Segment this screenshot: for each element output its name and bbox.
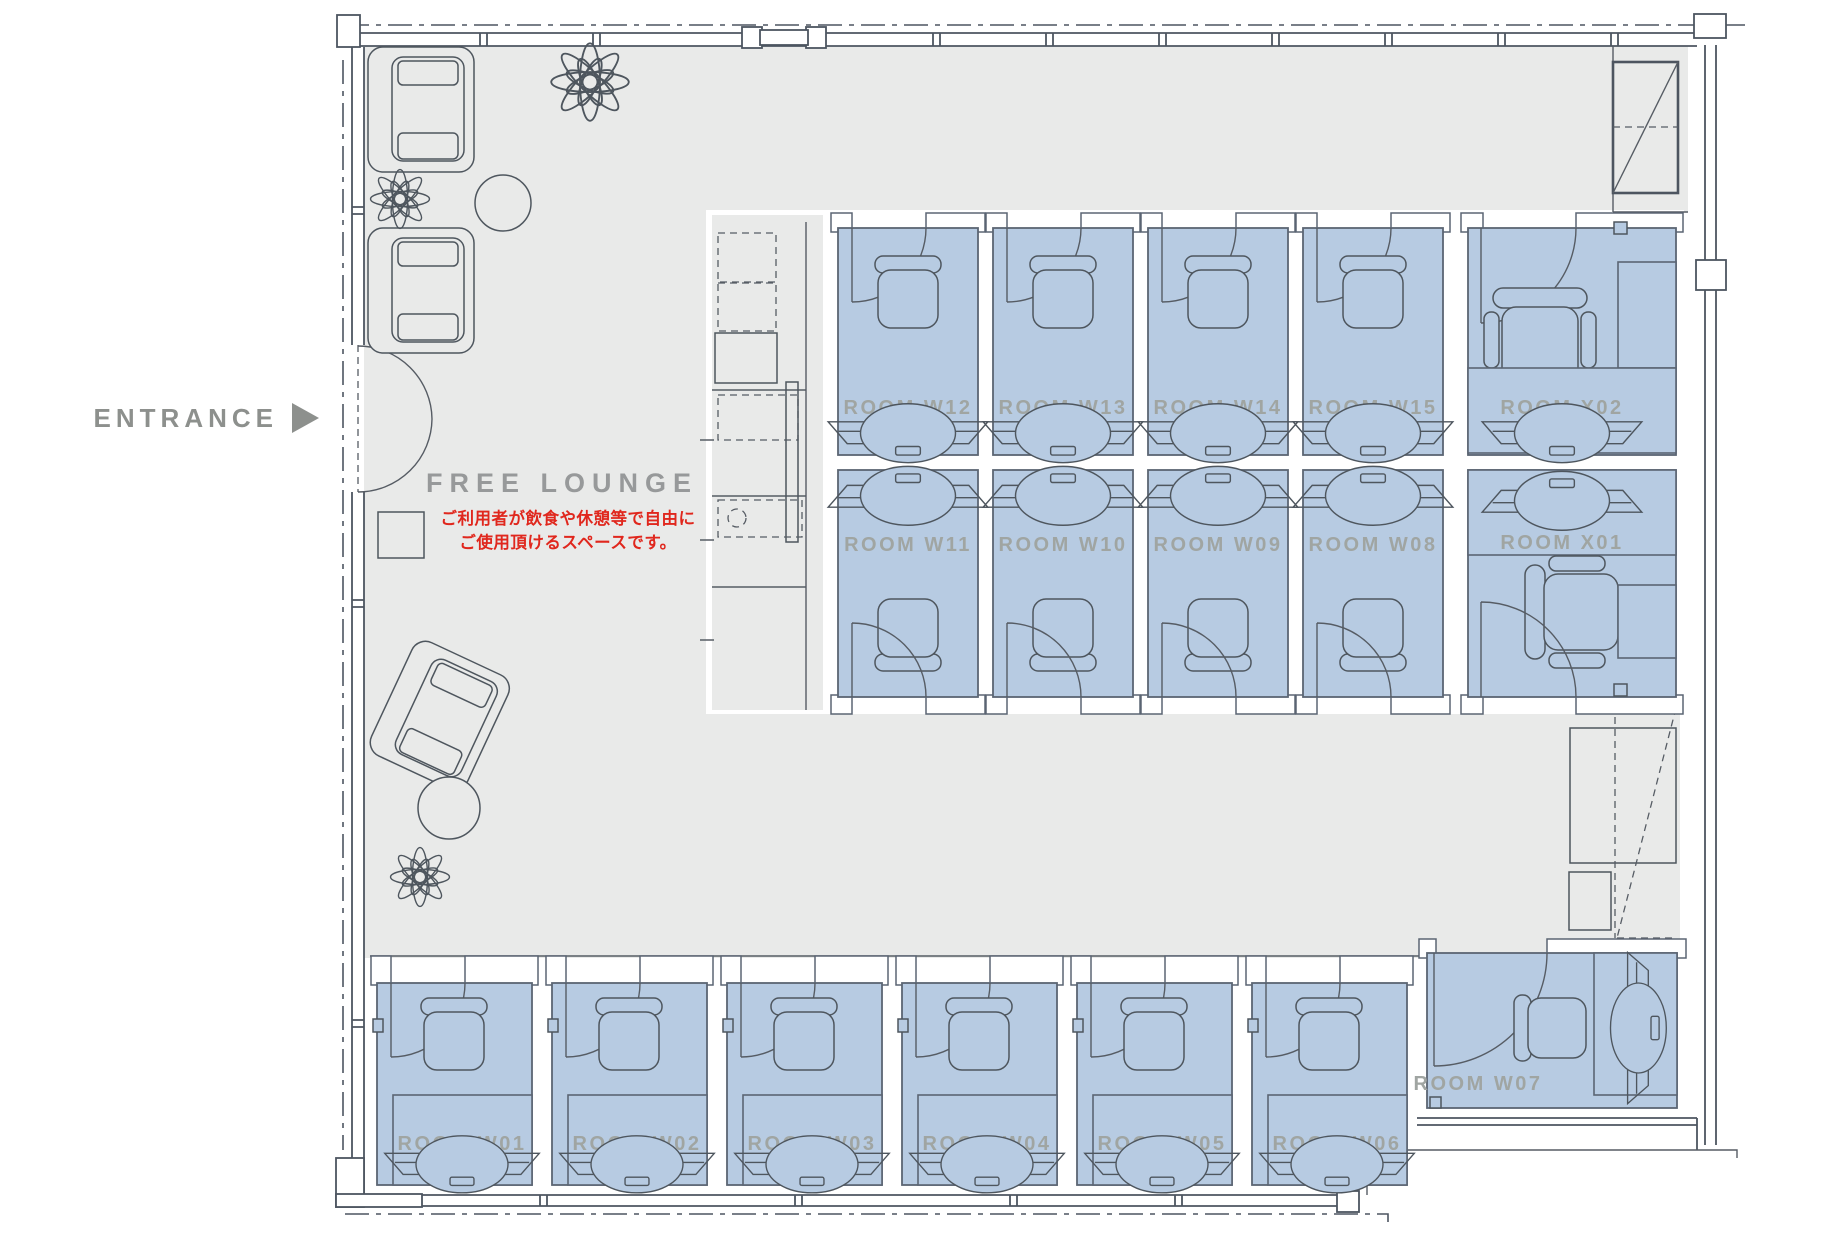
room-w06: ROOM W06 xyxy=(1246,956,1414,1193)
room-w10: ROOM W10 xyxy=(983,466,1143,714)
lounge-note-line1: ご利用者が飲食や休憩等で自由に xyxy=(441,508,696,528)
door-latch xyxy=(1614,222,1627,234)
room-w09: ROOM W09 xyxy=(1138,466,1298,714)
room-w03: ROOM W03 xyxy=(721,956,889,1193)
chair-icon xyxy=(596,998,662,1070)
room-label: ROOM W11 xyxy=(844,534,972,556)
door-latch xyxy=(1430,1097,1441,1108)
room-x02: ROOM X02 xyxy=(1461,213,1683,463)
door-latch xyxy=(723,1019,733,1032)
room-label: ROOM X01 xyxy=(1500,532,1623,554)
side-desk xyxy=(1618,585,1676,658)
chair-icon xyxy=(875,256,941,328)
door-latch xyxy=(1614,684,1627,696)
chair-icon xyxy=(1030,599,1096,671)
corner-post-topleft xyxy=(337,15,360,47)
door-latch xyxy=(548,1019,558,1032)
bottom-right-step xyxy=(1367,1150,1737,1195)
room-label: ROOM W10 xyxy=(999,534,1128,556)
chair-icon xyxy=(946,998,1012,1070)
room-w15: ROOM W15 xyxy=(1293,213,1453,463)
boundary-bottom xyxy=(345,1214,1388,1222)
round-table xyxy=(475,175,531,231)
side-cabinet xyxy=(378,512,424,558)
room-w12: ROOM W12 xyxy=(828,213,988,463)
top-wall-column xyxy=(806,27,826,48)
corner-post-topright xyxy=(1694,14,1726,38)
lounge-sofa xyxy=(368,47,474,172)
room-w02: ROOM W02 xyxy=(546,956,714,1193)
chair-icon xyxy=(771,998,837,1070)
top-wall-column xyxy=(742,27,762,48)
room-w11: ROOM W11 xyxy=(828,466,988,714)
room-w13: ROOM W13 xyxy=(983,213,1143,463)
room-label: ROOM W09 xyxy=(1154,534,1283,556)
bottom-wall-mullions xyxy=(540,1195,1182,1206)
room-w04: ROOM W04 xyxy=(896,956,1064,1193)
top-wall-mullions xyxy=(480,33,1618,46)
door-latch xyxy=(373,1019,383,1032)
entrance-label: ENTRANCE xyxy=(94,403,278,433)
side-desk xyxy=(1618,262,1676,368)
chair-icon xyxy=(1340,256,1406,328)
room-w08: ROOM W08 xyxy=(1293,466,1453,714)
w07-south-wall xyxy=(1417,1118,1697,1150)
kitchen-counter xyxy=(700,215,823,710)
chair-icon xyxy=(1296,998,1362,1070)
corner-post-bottomleft-web xyxy=(336,1194,422,1207)
door-latch xyxy=(1073,1019,1083,1032)
entrance-arrow-icon xyxy=(292,403,319,433)
chair-icon xyxy=(875,599,941,671)
chair-icon xyxy=(1185,256,1251,328)
lounge-title: FREE LOUNGE xyxy=(426,468,698,498)
floor-plan: ENTRANCE FREE LOUNGE ご利用者が飲食や休憩等で自由に ご使用… xyxy=(0,0,1843,1260)
chair-icon xyxy=(1514,995,1586,1061)
room-x01: ROOM X01 xyxy=(1461,470,1683,714)
chair-icon xyxy=(421,998,487,1070)
room-w01: ROOM W01 xyxy=(371,956,539,1193)
room-w07: ROOM W07 xyxy=(1414,939,1686,1108)
chair-icon xyxy=(1340,599,1406,671)
chair-icon xyxy=(1030,256,1096,328)
top-wall-column-web xyxy=(760,30,808,45)
lounge-sofa xyxy=(368,228,474,353)
lounge-note-line2: ご使用頂けるスペースです。 xyxy=(459,532,676,552)
bottom-wall-end-post xyxy=(1337,1191,1359,1212)
right-wall-post xyxy=(1696,260,1726,290)
door-latch xyxy=(898,1019,908,1032)
room-w05: ROOM W05 xyxy=(1071,956,1239,1193)
room-label: ROOM W07 xyxy=(1414,1073,1543,1095)
door-latch xyxy=(1248,1019,1258,1032)
chair-icon xyxy=(1185,599,1251,671)
room-w14: ROOM W14 xyxy=(1138,213,1298,463)
round-table xyxy=(418,777,480,839)
chair-icon xyxy=(1121,998,1187,1070)
room-label: ROOM W08 xyxy=(1309,534,1438,556)
